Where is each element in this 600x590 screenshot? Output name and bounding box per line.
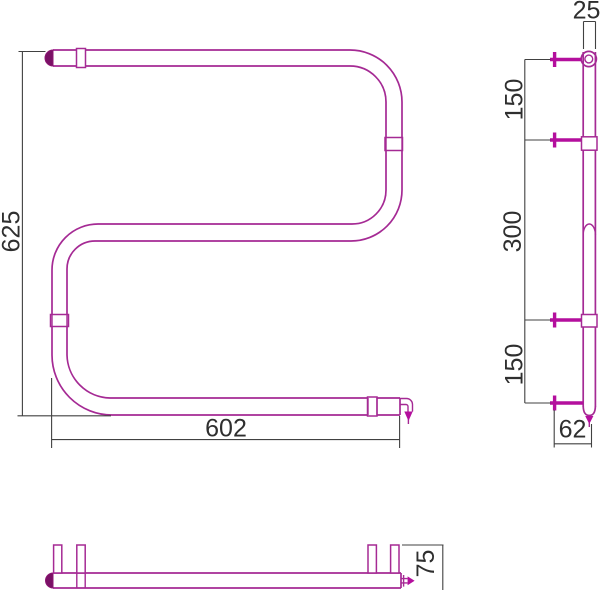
- bottom-bracket-2-pass: [77, 573, 85, 588]
- mount-ring-inner-icon: [585, 55, 593, 63]
- collar-pass-lines: [52, 50, 402, 415]
- dim-label-diameter: 25: [573, 0, 600, 25]
- bottom-bracket-stub-3: [368, 545, 376, 573]
- rail-junction-arc: [583, 224, 595, 235]
- wall-bracket-3: [550, 313, 582, 328]
- wall-bracket-1: [550, 52, 581, 67]
- bottom-pipe-cap-left: [46, 573, 53, 588]
- dim-label-height: 625: [0, 211, 26, 253]
- bottom-view: 75: [46, 545, 444, 590]
- technical-drawing-canvas: 625 602 25 150 300 150 62: [0, 0, 600, 590]
- bottom-bracket-stub-4: [391, 545, 399, 573]
- flow-arrow-down-icon: [404, 412, 412, 422]
- bracket-collar-left-vertical: [51, 315, 69, 327]
- side-collar-bracket-3: [582, 315, 598, 328]
- side-collar-bracket-2: [582, 137, 598, 150]
- dim-label-depth: 75: [412, 550, 440, 578]
- wall-bracket-2: [550, 133, 582, 148]
- side-flow-arrow-down-icon: [585, 416, 593, 424]
- dim-label-offset-bottom: 62: [559, 416, 587, 444]
- towel-rail-drawing: 625 602 25 150 300 150 62: [0, 0, 600, 590]
- bracket-collar-right-vertical: [385, 138, 403, 151]
- side-pipe-bottom-cap: [583, 406, 595, 416]
- dim-25-lines: [584, 22, 596, 50]
- bottom-bracket-stub-1: [54, 545, 62, 573]
- bottom-pipe-lines: [53, 573, 401, 588]
- dim-label-spacing-middle: 300: [499, 211, 527, 253]
- front-view: 625 602: [0, 49, 413, 449]
- bracket-collar-bottom-rail: [368, 397, 378, 416]
- dim-label-width: 602: [205, 415, 247, 443]
- dim-label-spacing-bottom: 150: [501, 344, 529, 386]
- side-view: 25 150 300 150 62: [499, 0, 600, 448]
- dim-label-spacing-top: 150: [501, 79, 529, 121]
- dim-625-lines: [18, 52, 112, 417]
- dim-spacing-lines: [525, 60, 551, 404]
- bottom-bracket-stub-2: [77, 545, 85, 573]
- bracket-collar-top-rail: [77, 49, 86, 68]
- wall-bracket-4: [550, 396, 583, 411]
- pipe-cap-left: [45, 50, 53, 66]
- side-pipe-lines: [583, 52, 595, 407]
- connection-hook-outline: [400, 399, 413, 412]
- bottom-connection-lines: [401, 575, 408, 587]
